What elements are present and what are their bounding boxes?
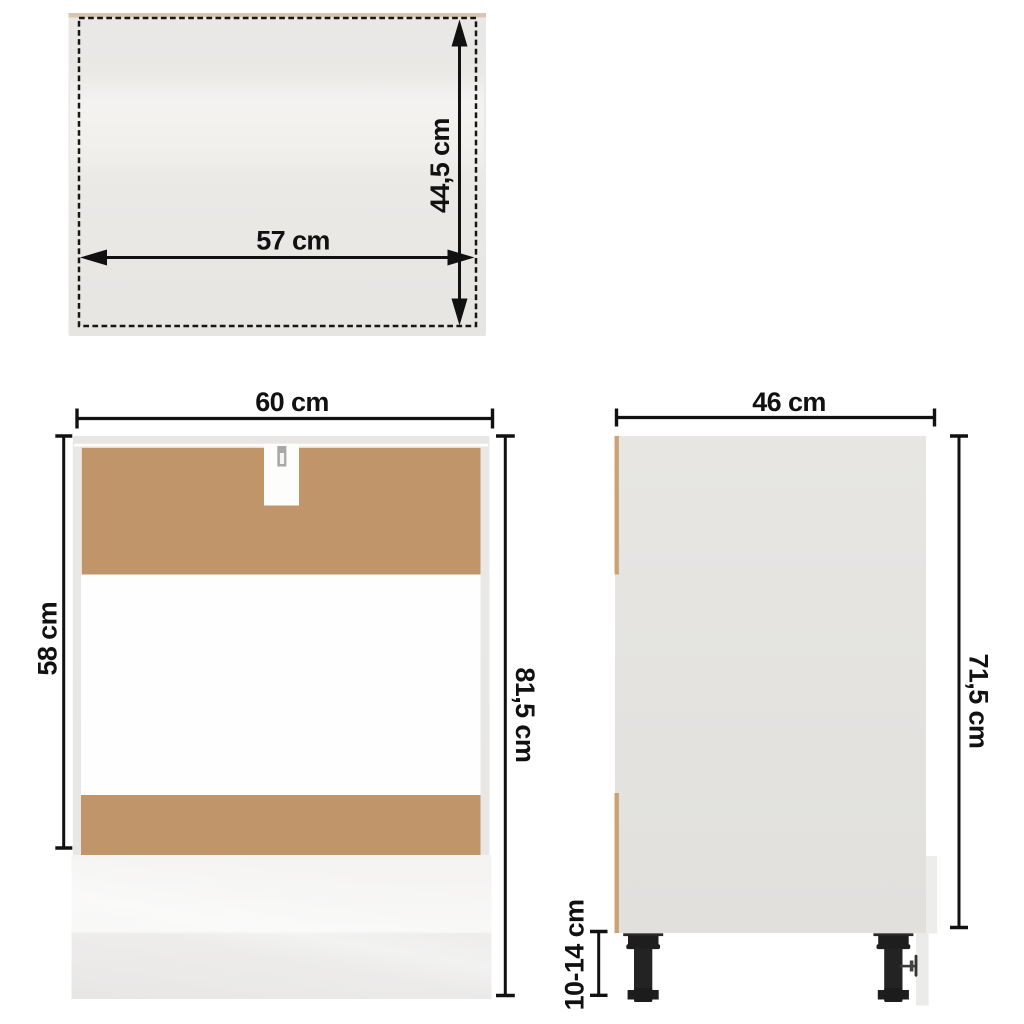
svg-text:44,5 cm: 44,5 cm — [425, 118, 455, 213]
svg-text:58 cm: 58 cm — [33, 602, 63, 676]
svg-text:57 cm: 57 cm — [256, 226, 330, 256]
svg-text:46 cm: 46 cm — [752, 387, 826, 417]
svg-text:10-14 cm: 10-14 cm — [560, 900, 590, 1011]
svg-text:71,5 cm: 71,5 cm — [964, 653, 994, 748]
svg-text:60 cm: 60 cm — [255, 387, 329, 417]
svg-text:81,5 cm: 81,5 cm — [510, 667, 540, 762]
